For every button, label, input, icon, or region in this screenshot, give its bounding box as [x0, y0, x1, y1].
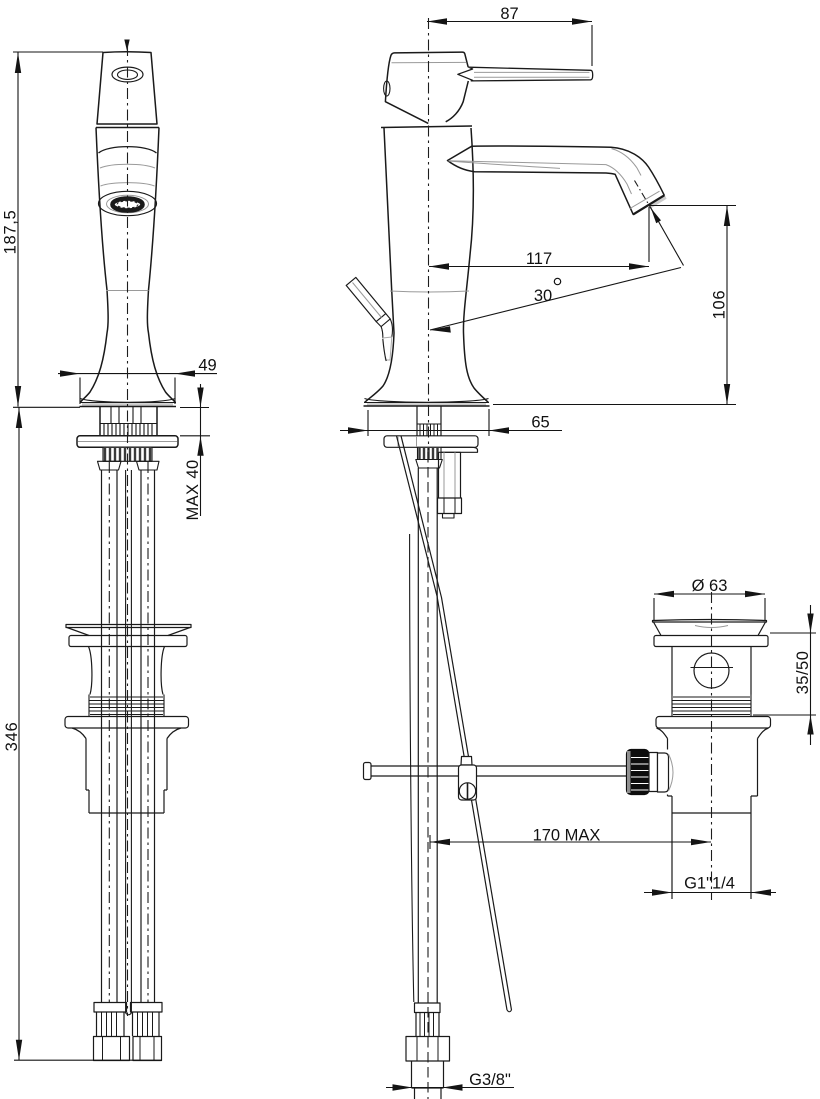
svg-text:30: 30 — [534, 287, 552, 305]
svg-text:346: 346 — [3, 722, 21, 752]
svg-text:35/50: 35/50 — [794, 651, 812, 695]
svg-text:65: 65 — [531, 414, 549, 432]
svg-text:117: 117 — [526, 250, 552, 268]
svg-text:49: 49 — [198, 357, 216, 375]
svg-text:Ø 63: Ø 63 — [692, 577, 728, 595]
svg-text:G3/8": G3/8" — [469, 1071, 511, 1089]
svg-text:G1"1/4: G1"1/4 — [684, 875, 735, 893]
svg-text:MAX 40: MAX 40 — [184, 459, 202, 520]
svg-text:106: 106 — [710, 290, 728, 320]
svg-text:170 MAX: 170 MAX — [533, 827, 601, 845]
svg-text:187,5: 187,5 — [1, 210, 19, 255]
svg-text:87: 87 — [500, 5, 518, 23]
